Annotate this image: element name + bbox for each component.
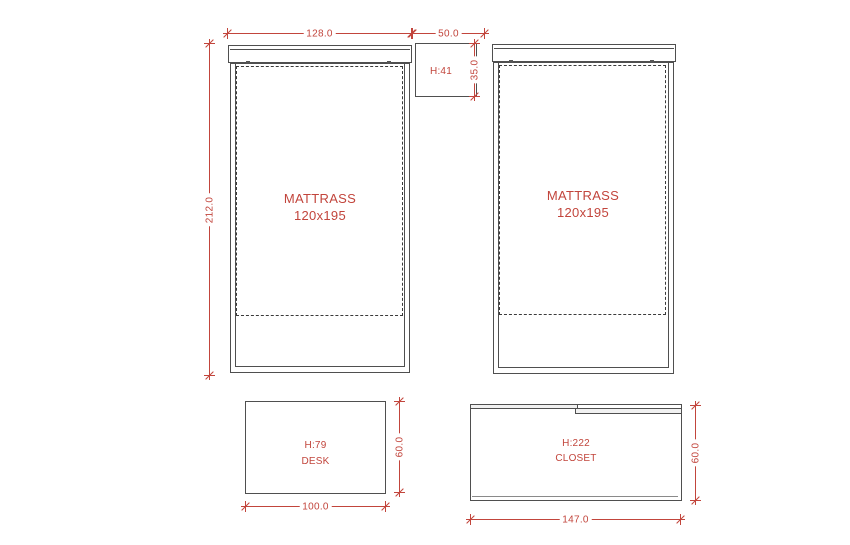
floor-plan-canvas: MATTRASS 120x195 MATTRASS 120x195 H:41 3… — [0, 0, 850, 545]
dim-gap-width: 50.0 — [412, 33, 485, 34]
bed-right-headboard-line — [494, 48, 674, 49]
bed-left-label: MATTRASS 120x195 — [250, 190, 390, 224]
bed-right-joint-mark — [650, 60, 654, 63]
bed-right-label-name: MATTRASS — [513, 187, 653, 204]
bed-left-label-size: 120x195 — [250, 207, 390, 224]
desk-label: H:79 DESK — [245, 438, 386, 470]
bed-right-label-size: 120x195 — [513, 204, 653, 221]
bed-left-label-name: MATTRASS — [250, 190, 390, 207]
bed-right-headboard — [492, 44, 676, 62]
dim-closet-depth-label: 60.0 — [690, 440, 701, 467]
closet-label-name: CLOSET — [470, 451, 682, 466]
bed-right-label: MATTRASS 120x195 — [513, 187, 653, 221]
desk-label-name: DESK — [245, 454, 386, 470]
nightstand-label: H:41 — [415, 64, 467, 80]
bed-left-headboard-line — [230, 49, 410, 50]
closet-label: H:222 CLOSET — [470, 436, 682, 466]
dim-closet-width: 147.0 — [470, 519, 681, 520]
dim-bed-width: 128.0 — [227, 33, 412, 34]
dim-nightstand-depth: 35.0 — [474, 43, 475, 97]
closet-sliding-door-right — [575, 408, 682, 414]
closet-sliding-door-left — [470, 404, 578, 409]
dim-gap-width-label: 50.0 — [435, 28, 462, 39]
bed-right-joint-mark — [509, 60, 513, 63]
desk-label-height: H:79 — [245, 438, 386, 454]
dim-closet-depth: 60.0 — [695, 405, 696, 501]
closet-bottom-inner-line — [472, 496, 678, 497]
dim-bed-width-label: 128.0 — [303, 28, 336, 39]
closet-label-height: H:222 — [470, 436, 682, 451]
dim-bed-length-label: 212.0 — [204, 193, 215, 226]
dim-closet-width-label: 147.0 — [559, 514, 592, 525]
dim-desk-width: 100.0 — [245, 506, 386, 507]
dim-nightstand-depth-label: 35.0 — [469, 57, 480, 84]
bed-left-joint-mark — [246, 61, 250, 64]
dim-desk-depth-label: 60.0 — [394, 434, 405, 461]
dim-desk-width-label: 100.0 — [299, 501, 332, 512]
dim-bed-length: 212.0 — [209, 43, 210, 376]
dim-desk-depth: 60.0 — [399, 401, 400, 493]
bed-left-joint-mark — [387, 61, 391, 64]
bed-left-headboard — [228, 45, 412, 63]
